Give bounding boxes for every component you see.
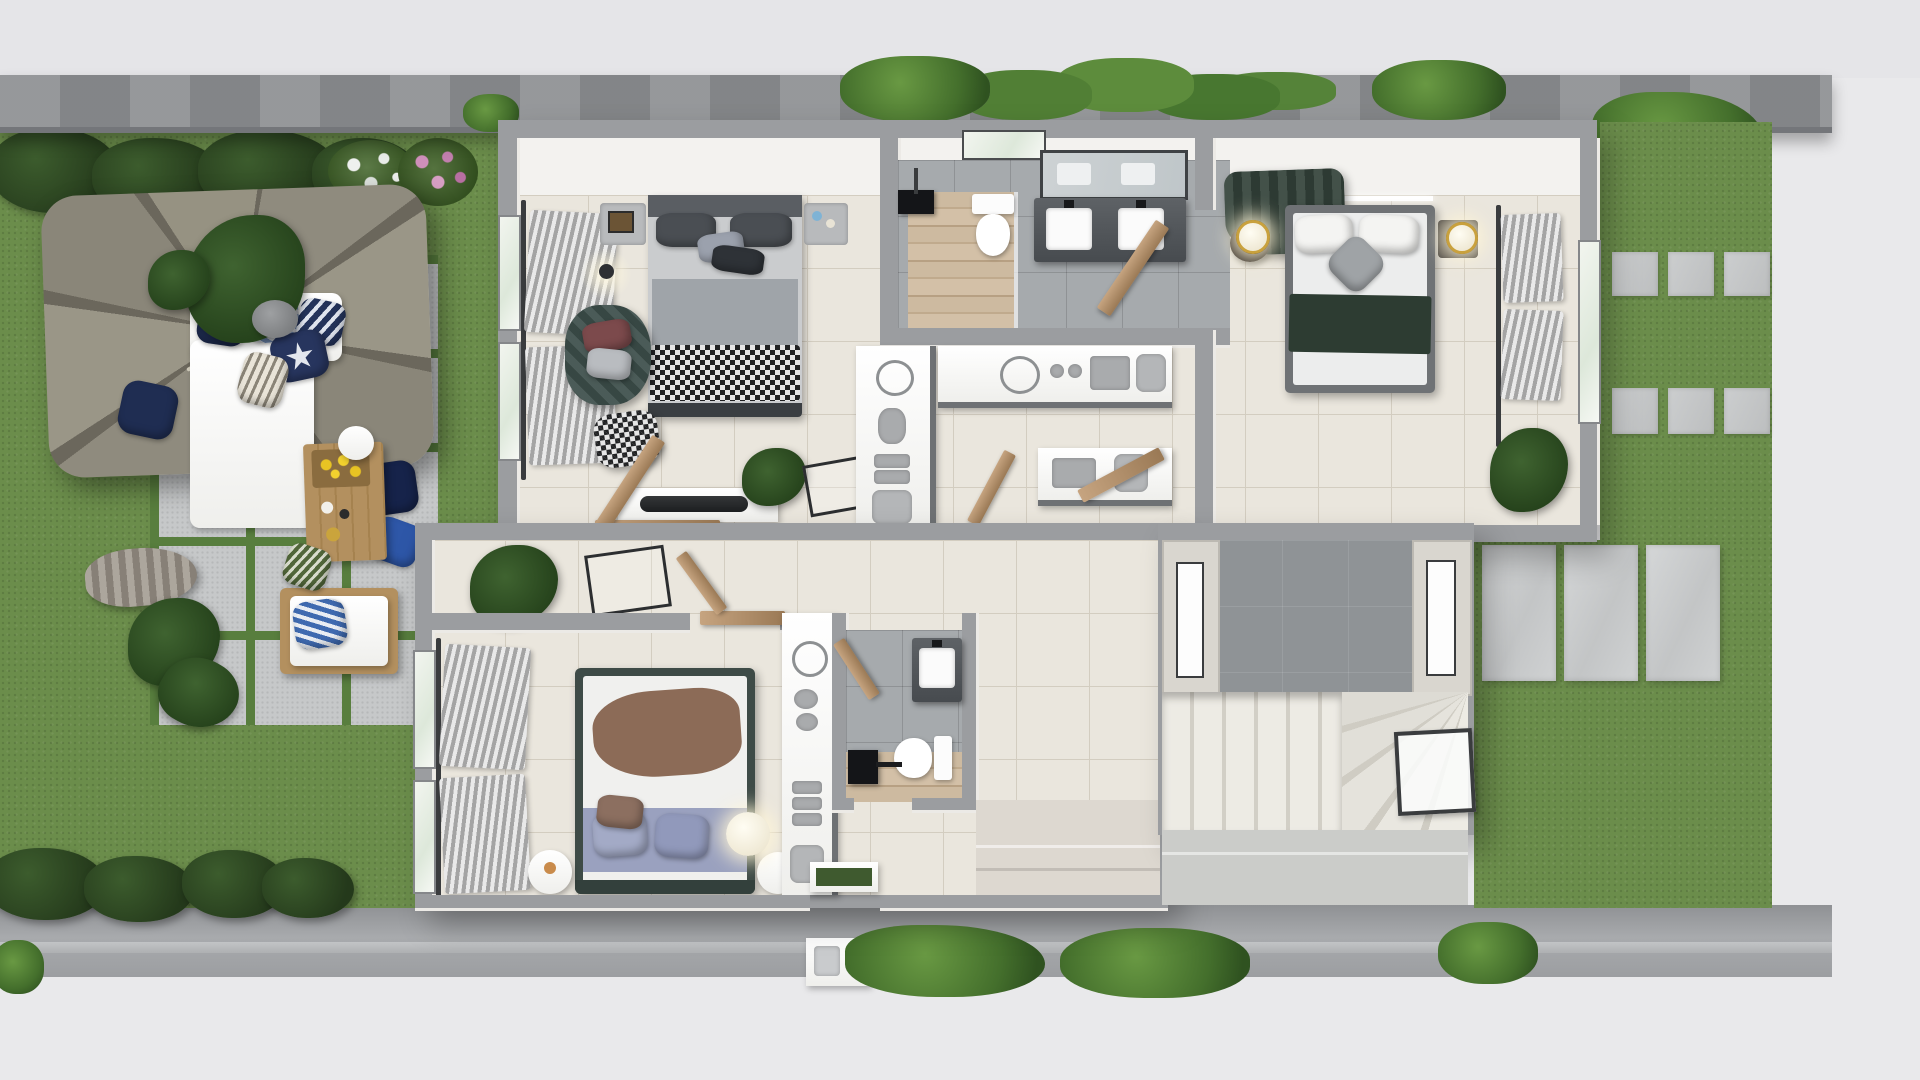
handbag xyxy=(1136,354,1166,392)
blanket-green xyxy=(1289,294,1432,354)
toilet-bottom xyxy=(894,736,954,780)
coffee-table xyxy=(303,442,387,563)
window-west-2 xyxy=(498,342,521,461)
curtains xyxy=(1500,213,1563,303)
porch-step-line xyxy=(976,868,1160,871)
floor-ball-lamp xyxy=(726,812,770,856)
nightstand-right xyxy=(804,203,848,245)
stair-landing xyxy=(1216,540,1412,692)
table-cup xyxy=(321,501,333,513)
faucet xyxy=(932,640,942,647)
shower-glass xyxy=(1014,192,1018,330)
glass-panel xyxy=(1394,728,1476,816)
decor-dot xyxy=(544,862,556,874)
bed-blanket-gray xyxy=(652,279,798,351)
shower-arm xyxy=(876,762,902,767)
stepping-stone xyxy=(1668,252,1714,296)
front-curb-left xyxy=(0,942,806,953)
toilet-tank xyxy=(934,736,952,780)
utility-box-panel xyxy=(814,946,840,976)
window-west-1 xyxy=(498,215,521,331)
bathroom-south-wall xyxy=(880,328,1230,348)
curtains xyxy=(439,774,531,894)
lounge-chair xyxy=(280,588,398,674)
bath2-south-wall xyxy=(832,798,854,813)
front-wall xyxy=(415,895,810,911)
front-wall xyxy=(880,895,1168,911)
globe-lamp xyxy=(1446,222,1478,254)
footboard xyxy=(575,880,755,894)
shower-fixture-black xyxy=(848,750,878,784)
bed2-closet-counter xyxy=(782,613,838,895)
mirror-reflection xyxy=(1121,163,1155,185)
tray-boxes xyxy=(1090,356,1130,390)
stair-terrace xyxy=(1162,830,1468,905)
ivy-cluster xyxy=(1372,60,1506,120)
bath2-vanity xyxy=(912,638,962,702)
curtain-rod xyxy=(521,200,526,480)
green-doormat xyxy=(816,868,872,886)
stone-slab xyxy=(1646,545,1720,681)
pillow-lavender xyxy=(654,812,711,860)
wire-ring xyxy=(792,641,828,677)
pillow-mauve xyxy=(595,794,644,831)
toilet-bowl xyxy=(894,738,932,778)
round-nightstand xyxy=(528,850,572,894)
toilet-tank xyxy=(972,194,1014,214)
shower-arm xyxy=(914,168,918,194)
bath2-east-wall xyxy=(962,613,979,808)
curtain-rod xyxy=(1496,205,1501,447)
curtains xyxy=(439,644,531,770)
decor-dot xyxy=(826,219,835,228)
ivy-cluster xyxy=(1438,922,1538,984)
hedge-bush xyxy=(84,856,194,922)
wire-ring xyxy=(1000,356,1040,394)
stepping-stone xyxy=(1612,388,1658,434)
ivy-sprig xyxy=(0,940,44,994)
decor-dot xyxy=(812,211,822,221)
wall-closet-master-upper xyxy=(1195,138,1216,210)
vanity-sink xyxy=(919,648,955,688)
closet-counter-vertical xyxy=(856,346,936,530)
easel-frame xyxy=(584,545,672,618)
pendant-lamp xyxy=(599,264,614,279)
bed-throw-checkered xyxy=(650,345,800,401)
toilet-top xyxy=(972,194,1014,258)
nightstand-left xyxy=(600,203,646,245)
armchair-teal xyxy=(565,305,651,405)
ivy-cluster xyxy=(840,56,990,122)
stairwell-window-west xyxy=(1176,562,1204,678)
sunglasses xyxy=(878,408,906,444)
toilet-bowl xyxy=(976,214,1010,256)
globe-lamp xyxy=(1236,220,1270,254)
wall-closet-master-lower xyxy=(1195,330,1216,542)
upper-west-wall xyxy=(500,138,520,525)
vanity-mirror xyxy=(1040,150,1188,200)
faucet xyxy=(1136,200,1146,208)
stacked-boxes xyxy=(874,454,910,468)
bathroom-window xyxy=(962,130,1046,160)
stairwell-window-east xyxy=(1426,560,1456,676)
table-bowl xyxy=(326,527,340,541)
stairs-straight xyxy=(1162,692,1342,830)
stepping-stone xyxy=(1724,388,1770,434)
window-east xyxy=(1578,240,1601,424)
pillow-black xyxy=(710,244,765,277)
doormat-frame xyxy=(810,862,878,892)
terrace-step-line xyxy=(1162,852,1468,855)
cup xyxy=(1050,364,1064,378)
bed2-door-leaf xyxy=(700,611,785,625)
stone-decor xyxy=(796,713,818,731)
stone-decor xyxy=(794,689,818,709)
bed-master xyxy=(1285,205,1435,393)
mirror-reflection xyxy=(1057,163,1091,185)
bed2-north-wall xyxy=(432,613,690,633)
handbag xyxy=(872,490,912,524)
bath2-south-wall xyxy=(912,798,976,813)
curtain-rod xyxy=(436,638,441,898)
wire-ring xyxy=(876,360,914,396)
porch-step-line xyxy=(976,845,1160,848)
cup xyxy=(1068,364,1082,378)
stacked-boxes xyxy=(792,813,822,826)
table-cup xyxy=(339,509,349,519)
window-west-4 xyxy=(413,780,436,894)
hedge-bush xyxy=(262,858,354,918)
floor-plan-render xyxy=(0,0,1920,1080)
stone-slab xyxy=(1564,545,1638,681)
faucet xyxy=(1064,200,1074,208)
stepping-stone xyxy=(1724,252,1770,296)
vanity-sink xyxy=(1046,208,1092,250)
pillow-blue-striped xyxy=(291,597,349,652)
pillow-gray xyxy=(586,347,633,381)
footboard xyxy=(648,403,802,417)
window-west-3 xyxy=(413,650,436,769)
stone-slab xyxy=(1482,545,1556,681)
right-lawn-upper xyxy=(1600,122,1772,542)
closet-counter-horizontal xyxy=(938,346,1172,408)
stacked-boxes xyxy=(792,797,822,810)
bed-bottom-left xyxy=(575,668,755,894)
stepping-stone xyxy=(1668,388,1714,434)
console-device xyxy=(640,496,748,512)
stepping-stone xyxy=(1612,252,1658,296)
ivy-cluster xyxy=(1060,928,1250,998)
stacked-boxes xyxy=(792,781,822,794)
stacked-boxes xyxy=(874,470,910,484)
bed-top-left xyxy=(648,195,802,417)
side-tray xyxy=(338,426,374,460)
plant-pot xyxy=(252,300,298,338)
curtains xyxy=(1500,309,1563,401)
nightstand-art xyxy=(608,211,634,233)
